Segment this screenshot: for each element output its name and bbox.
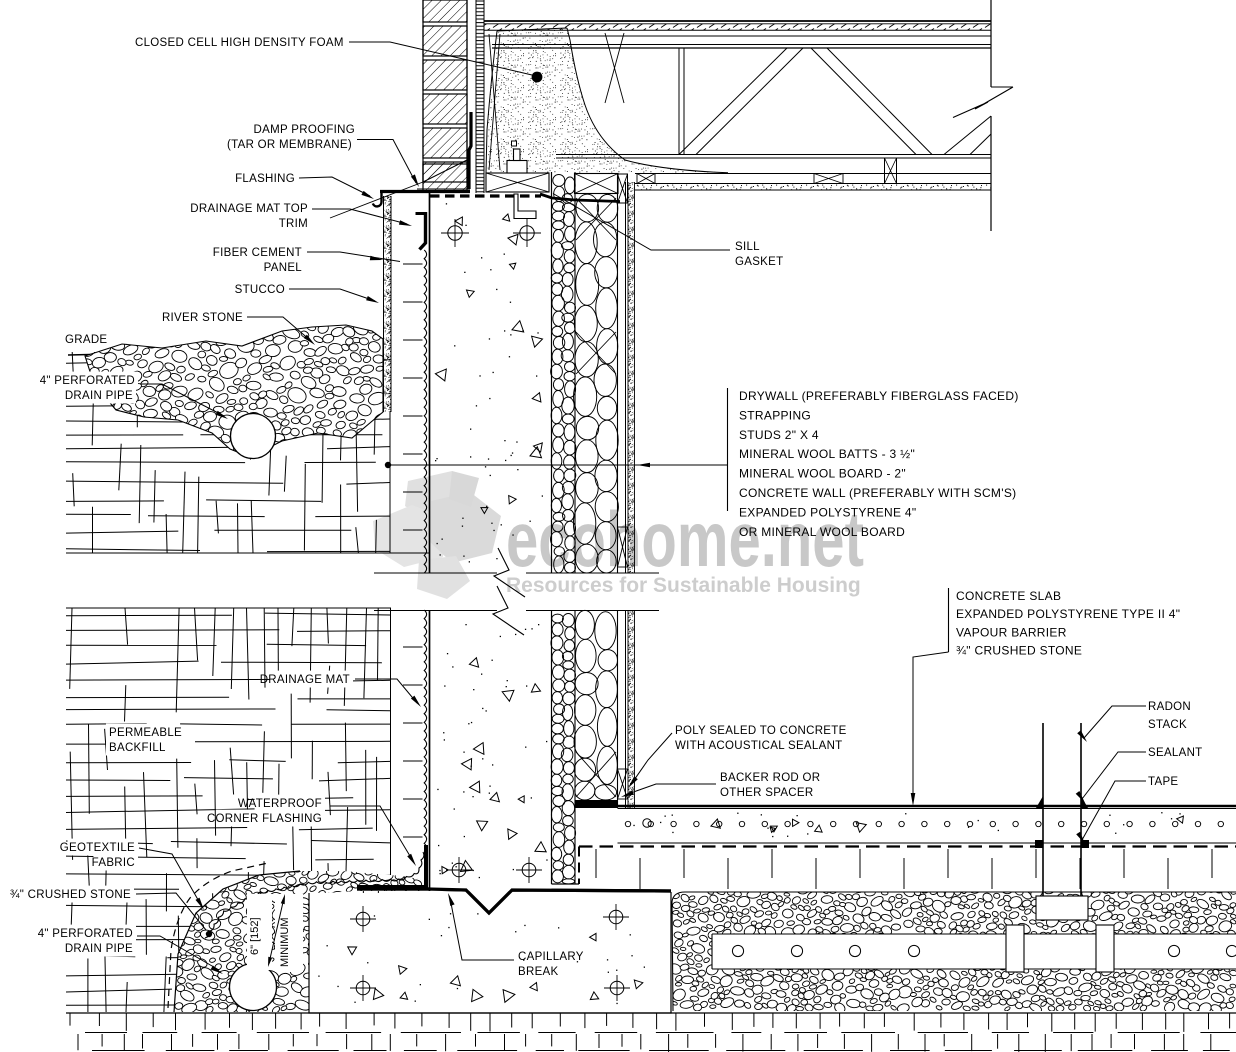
svg-text:(TAR OR MEMBRANE): (TAR OR MEMBRANE) xyxy=(227,139,352,151)
svg-text:WITH ACOUSTICAL SEALANT: WITH ACOUSTICAL SEALANT xyxy=(675,740,843,752)
svg-text:CLOSED CELL HIGH DENSITY FOAM: CLOSED CELL HIGH DENSITY FOAM xyxy=(135,37,344,49)
svg-text:MINIMUM: MINIMUM xyxy=(279,918,291,968)
svg-text:BACKER ROD OR: BACKER ROD OR xyxy=(720,772,820,784)
svg-text:DRAINAGE MAT TOP: DRAINAGE MAT TOP xyxy=(190,203,308,215)
svg-text:MINERAL WOOL BOARD - 2": MINERAL WOOL BOARD - 2" xyxy=(739,467,906,481)
svg-text:DRAIN PIPE: DRAIN PIPE xyxy=(65,943,133,955)
svg-text:GASKET: GASKET xyxy=(735,256,783,268)
svg-text:DRYWALL (PREFERABLY FIBERGLASS: DRYWALL (PREFERABLY FIBERGLASS FACED) xyxy=(739,389,1019,403)
svg-text:RIVER STONE: RIVER STONE xyxy=(162,312,243,324)
svg-text:STRAPPING: STRAPPING xyxy=(739,408,811,422)
svg-text:GRADE: GRADE xyxy=(65,334,107,346)
svg-text:VAPOUR BARRIER: VAPOUR BARRIER xyxy=(956,625,1067,639)
svg-text:GEOTEXTILE: GEOTEXTILE xyxy=(60,842,135,854)
svg-text:WATERPROOF: WATERPROOF xyxy=(238,798,322,810)
svg-text:FIBER CEMENT: FIBER CEMENT xyxy=(213,247,302,259)
svg-text:RADON: RADON xyxy=(1148,701,1191,713)
svg-text:FLASHING: FLASHING xyxy=(235,173,295,185)
svg-text:OTHER SPACER: OTHER SPACER xyxy=(720,787,813,799)
svg-text:CAPILLARY: CAPILLARY xyxy=(518,951,584,963)
svg-text:4" PERFORATED: 4" PERFORATED xyxy=(38,928,133,940)
svg-text:CONCRETE SLAB: CONCRETE SLAB xyxy=(956,589,1061,603)
svg-text:TAPE: TAPE xyxy=(1148,776,1178,788)
svg-text:DAMP PROOFING: DAMP PROOFING xyxy=(254,124,355,136)
svg-text:SILL: SILL xyxy=(735,241,760,253)
svg-text:¾" CRUSHED STONE: ¾" CRUSHED STONE xyxy=(956,644,1082,658)
svg-text:STUDS 2" X 4: STUDS 2" X 4 xyxy=(739,428,819,442)
svg-text:EXPANDED POLYSTYRENE TYPE II 4: EXPANDED POLYSTYRENE TYPE II 4" xyxy=(956,607,1180,621)
svg-text:DRAIN PIPE: DRAIN PIPE xyxy=(65,390,133,402)
svg-text:PERMEABLE: PERMEABLE xyxy=(109,727,182,739)
svg-text:6" [152]: 6" [152] xyxy=(249,917,261,955)
svg-text:BREAK: BREAK xyxy=(518,966,559,978)
svg-text:POLY SEALED TO CONCRETE: POLY SEALED TO CONCRETE xyxy=(675,725,847,737)
svg-text:BACKFILL: BACKFILL xyxy=(109,742,166,754)
svg-text:MINERAL WOOL BATTS - 3 ½": MINERAL WOOL BATTS - 3 ½" xyxy=(739,447,915,461)
svg-text:STACK: STACK xyxy=(1148,719,1187,731)
svg-text:PANEL: PANEL xyxy=(264,262,303,274)
svg-text:TRIM: TRIM xyxy=(279,218,308,230)
svg-text:STUCCO: STUCCO xyxy=(235,284,285,296)
svg-text:4" PERFORATED: 4" PERFORATED xyxy=(40,375,135,387)
svg-text:DRAINAGE MAT: DRAINAGE MAT xyxy=(260,674,350,686)
svg-text:CORNER FLASHING: CORNER FLASHING xyxy=(207,813,322,825)
svg-text:FABRIC: FABRIC xyxy=(92,857,135,869)
svg-text:Resources for Sustainable Hous: Resources for Sustainable Housing xyxy=(506,574,861,597)
svg-text:ecohome.net: ecohome.net xyxy=(506,496,864,583)
svg-text:¾" CRUSHED STONE: ¾" CRUSHED STONE xyxy=(10,889,131,901)
svg-text:SEALANT: SEALANT xyxy=(1148,747,1203,759)
